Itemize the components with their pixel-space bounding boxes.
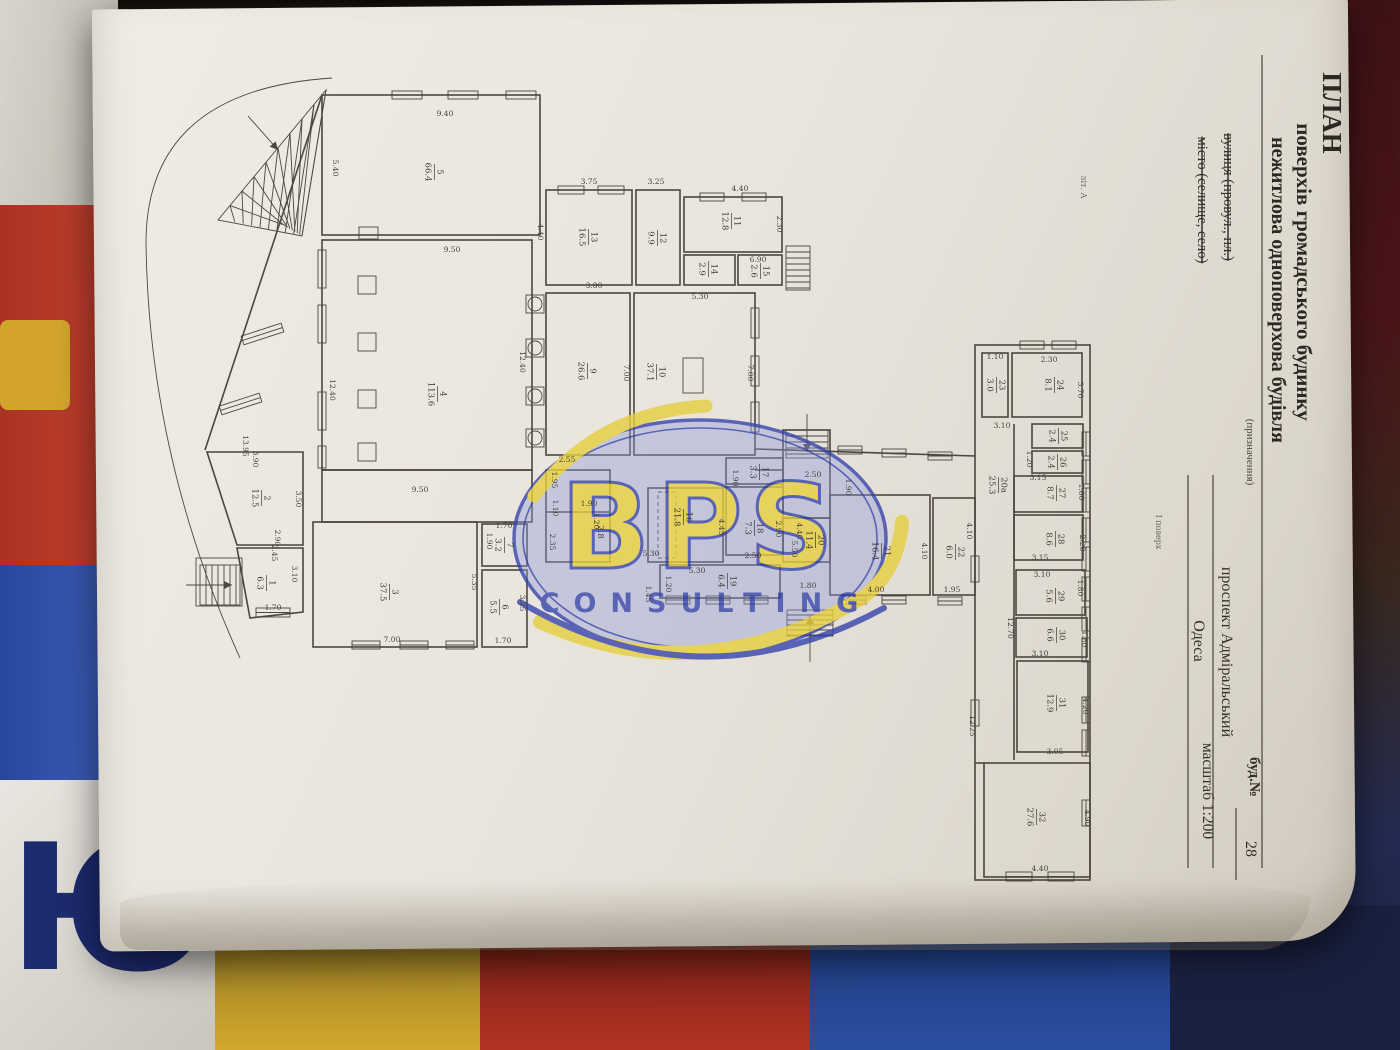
title-block-text: буд.№ — [1246, 757, 1262, 797]
room-number: 32 — [1037, 812, 1047, 823]
room-number: 7 — [505, 542, 515, 547]
dimension-label: 6.90 — [750, 255, 767, 264]
room-area: 12.9 — [1045, 694, 1055, 713]
dimension-label: 3.15 — [1032, 553, 1049, 562]
dimension-label: 12.25 — [968, 715, 977, 737]
watermark-subtitle-text: CONSULTING — [540, 588, 873, 619]
room-label: 233.0 — [985, 377, 1007, 393]
room-number: 4 — [438, 391, 448, 396]
dimension-label: 1.90 — [731, 470, 740, 487]
room-area: 2.6 — [749, 264, 759, 278]
room-label: 295.6 — [1044, 588, 1066, 604]
dimension-label: 7.00 — [384, 635, 401, 644]
room-label: 4113.6 — [426, 382, 448, 406]
room-number: 11 — [732, 216, 742, 227]
room-area: 16.4 — [870, 542, 880, 561]
room-area: 25.3 — [987, 476, 997, 495]
window-symbol — [448, 91, 478, 99]
room-area: 16.5 — [577, 228, 587, 247]
room-number: 30 — [1057, 630, 1067, 641]
dimension-label: 1.20 — [592, 513, 601, 530]
round-column — [526, 387, 544, 405]
room-area: 9.9 — [646, 231, 656, 245]
dimension-label: 2.90 — [774, 521, 783, 538]
floor-plan-drawing: BPS CONSULTING 566.44113.61316.5129.9111… — [0, 0, 1400, 1050]
dimension-label: 2.35 — [548, 534, 557, 551]
room-number: 24 — [1055, 380, 1065, 391]
dimension-label: 1.90 — [844, 479, 853, 496]
dimension-label: 1.70 — [496, 521, 513, 530]
room-label: 142.9 — [697, 261, 719, 277]
room-number: 31 — [1057, 698, 1067, 709]
room-area: 27.6 — [1025, 808, 1035, 827]
dimension-label: 2.50 — [745, 551, 762, 560]
dimension-label: 4.45 — [717, 519, 726, 536]
window-symbol — [318, 250, 326, 288]
room-wall — [322, 240, 532, 470]
dimension-label: 1.10 — [551, 500, 560, 517]
room-label: 306.6 — [1045, 627, 1067, 643]
room-number: 15 — [761, 266, 771, 277]
dimension-label: 5.30 — [692, 292, 709, 301]
room-area: 113.6 — [426, 382, 436, 406]
dimension-label: 1.90 — [581, 499, 598, 508]
room-label: 3112.9 — [1045, 694, 1067, 713]
plan-annotation: І поверх — [1154, 515, 1163, 550]
room-area: 37.5 — [378, 583, 388, 602]
dimension-label: 1.10 — [987, 352, 1004, 361]
dimension-label: 2.55 — [559, 455, 576, 464]
dimension-label: 3.10 — [290, 566, 299, 583]
dimension-label: 2.20 — [1078, 535, 1087, 552]
dimension-label: 4.00 — [868, 585, 885, 594]
room-label: 248.1 — [1043, 377, 1065, 393]
room-number: 20а — [999, 477, 1009, 493]
wall-line — [205, 95, 322, 450]
dimension-label: 3.10 — [994, 421, 1011, 430]
dimension-label: 4.90 — [1083, 810, 1092, 827]
room-number: 1 — [267, 580, 277, 585]
window-symbol — [742, 193, 766, 201]
window-symbol — [318, 392, 326, 430]
plan-fixture — [683, 358, 703, 393]
room-area: 5.6 — [1044, 589, 1054, 603]
window-symbol — [971, 556, 979, 582]
dimension-label: 3.10 — [1032, 649, 1049, 658]
window-symbol — [318, 305, 326, 343]
window-symbol — [598, 186, 624, 194]
room-area: 2.4 — [1047, 429, 1057, 443]
dimension-label: 1.20 — [1025, 451, 1034, 468]
dimension-label: 5.30 — [689, 566, 706, 575]
room-wall — [1032, 424, 1083, 448]
room-number: 5 — [435, 169, 445, 174]
room-label: 252.4 — [1047, 428, 1069, 444]
dimension-label: 3.70 — [1076, 382, 1085, 399]
column-pilaster — [358, 333, 376, 351]
dimension-label: 4.40 — [536, 224, 545, 241]
room-label: 262.4 — [1046, 454, 1068, 470]
room-label: 566.4 — [423, 163, 445, 182]
window-symbol — [506, 91, 536, 99]
room-number: 13 — [589, 232, 599, 243]
room-label: 152.6 — [749, 263, 771, 279]
dimension-label: 2.45 — [270, 545, 279, 562]
title-block: ПЛАНповерхів громадського будинкунежитло… — [1188, 55, 1347, 880]
dimension-label: 9.50 — [412, 485, 429, 494]
dimension-label: 5.40 — [331, 160, 340, 177]
dimension-label: 4.40 — [732, 184, 749, 193]
dimension-label: 5.50 — [790, 541, 799, 558]
room-label: 288.6 — [1044, 531, 1066, 547]
room-area: 37.1 — [645, 363, 655, 382]
room-label: 212.5 — [250, 489, 272, 508]
dimension-label: 3.75 — [581, 177, 598, 186]
round-column — [526, 429, 544, 447]
dimension-label: 1.80 — [1076, 580, 1085, 597]
room-area: 2.9 — [697, 262, 707, 276]
room-label: 1316.5 — [577, 228, 599, 247]
dimension-label: 1.70 — [495, 636, 512, 645]
room-area: 66.4 — [423, 163, 433, 182]
room-number: 2 — [262, 495, 272, 500]
room-label: 226.0 — [944, 544, 966, 560]
dimension-label: 3.25 — [648, 177, 665, 186]
room-number: 23 — [997, 380, 1007, 391]
room-number: 3 — [390, 589, 400, 594]
dimension-label: 2.30 — [775, 216, 784, 233]
window-symbol — [938, 597, 962, 605]
room-area: 8.7 — [1045, 486, 1055, 500]
room-area: 6.3 — [255, 576, 265, 590]
room-label: 3227.6 — [1025, 808, 1047, 827]
dimension-label: 1.80 — [1080, 631, 1089, 648]
plan-annotation: літ. А — [1079, 175, 1088, 198]
room-number: 21 — [882, 546, 892, 557]
title-block-text: (призначення) — [1244, 419, 1256, 486]
dimension-label: 7.00 — [746, 365, 755, 382]
room-number: 20 — [816, 535, 826, 546]
room-label: 1112.8 — [720, 212, 742, 231]
title-block-text: нежитлова одноповерхова будівля — [1267, 137, 1289, 443]
title-block-text: вулиця (провул., пл.) — [1220, 133, 1236, 261]
room-number: 26 — [1058, 457, 1068, 468]
room-area: 21.8 — [672, 508, 682, 527]
room-number: 6 — [500, 604, 510, 609]
room-number: 14 — [709, 264, 719, 275]
stairs-symbol — [786, 246, 810, 290]
room-area: 6.6 — [1045, 628, 1055, 642]
dimension-label: 1.45 — [644, 586, 653, 603]
room-wall — [313, 522, 477, 647]
bps-watermark: BPS CONSULTING — [514, 406, 902, 657]
column-pilaster — [358, 390, 376, 408]
window-symbol — [219, 393, 262, 415]
window-symbol — [1082, 607, 1090, 631]
window-symbol — [392, 91, 422, 99]
dimension-label: 12.40 — [328, 379, 337, 401]
room-area: 12.5 — [250, 489, 260, 508]
room-label: 337.5 — [378, 583, 400, 602]
room-label: 65.5 — [488, 599, 510, 615]
window-symbol — [1052, 341, 1076, 349]
dimension-label: 3.25 — [518, 595, 527, 612]
entrance-arrow — [248, 116, 278, 150]
title-block-text: 28 — [1242, 841, 1259, 857]
room-number: 19 — [728, 576, 738, 587]
dimension-label: 1.70 — [265, 603, 282, 612]
dimension-label: 5.30 — [643, 549, 660, 558]
column-pilaster — [358, 276, 376, 294]
dimension-label: 12.70 — [1006, 617, 1015, 639]
dimension-label: 4.40 — [1032, 864, 1049, 873]
room-area: 6.4 — [716, 574, 726, 588]
dimension-label: 3.80 — [586, 281, 603, 290]
room-number: 17 — [760, 467, 770, 478]
dimension-label: 4.10 — [920, 543, 929, 560]
photo-stage: Ю BPS CONSULTING 566.44113.61316.5129.91… — [0, 0, 1400, 1050]
annotation-labels: літ. АІ поверх — [1079, 175, 1163, 549]
dimension-label: 3.50 — [294, 491, 303, 508]
dimension-label: 7.00 — [622, 365, 631, 382]
room-number: 28 — [1056, 534, 1066, 545]
dimension-label: 3.10 — [1034, 570, 1051, 579]
room-area: 7.3 — [743, 521, 753, 535]
dimension-label: 4.40 — [795, 523, 804, 540]
room-label: 278.7 — [1045, 485, 1067, 501]
dimension-label: 1.80 — [800, 581, 817, 590]
room-area: 2.4 — [1046, 455, 1056, 469]
room-number: 29 — [1056, 591, 1066, 602]
dimension-label: 2.50 — [805, 470, 822, 479]
room-number: 10 — [657, 367, 667, 378]
room-area: 12.8 — [720, 212, 730, 231]
dimension-label: 9.40 — [437, 109, 454, 118]
dimension-label: 13.95 — [241, 435, 250, 457]
room-number: 12 — [658, 233, 668, 244]
window-symbol — [700, 193, 724, 201]
window-symbol — [318, 446, 326, 468]
window-symbol — [882, 449, 906, 457]
room-label: 1037.1 — [645, 363, 667, 382]
plan-fixture — [359, 227, 378, 239]
room-number: 25 — [1059, 431, 1069, 442]
title-block-text: місто (селище, село) — [1194, 137, 1210, 264]
room-number: 27 — [1057, 488, 1067, 499]
room-area: 5.5 — [488, 600, 498, 614]
room-area: 3.0 — [985, 378, 995, 392]
room-area: 8.6 — [1044, 532, 1054, 546]
window-symbol — [241, 323, 284, 345]
dimension-label: 5.35 — [470, 574, 479, 591]
window-symbol — [558, 186, 584, 194]
room-number: 16 — [684, 512, 694, 523]
dimension-label: 9.50 — [444, 245, 461, 254]
window-symbol — [928, 452, 952, 460]
room-number: 22 — [956, 547, 966, 558]
dimension-label: 1.95 — [550, 472, 559, 489]
dimension-label: 4.20 — [1081, 698, 1090, 715]
room-label: 926.6 — [576, 362, 598, 381]
room-label: 20а25.3 — [987, 476, 1009, 495]
dimension-label: 12.40 — [518, 351, 527, 373]
window-symbol — [751, 308, 759, 338]
room-wall — [322, 470, 532, 522]
room-number: 18 — [755, 523, 765, 534]
room-number: 9 — [588, 368, 598, 373]
window-symbol — [882, 596, 906, 604]
room-area: 8.1 — [1043, 378, 1053, 392]
title-block-text: Одеса — [1190, 620, 1207, 661]
dimension-label: 3.15 — [1030, 473, 1047, 482]
dimension-label: 4.10 — [965, 523, 974, 540]
room-label: 129.9 — [646, 230, 668, 246]
round-column — [526, 295, 544, 313]
title-block-text: проспект Адміральський — [1218, 567, 1235, 738]
dimension-label: 1.95 — [944, 585, 961, 594]
room-label: 73.2 — [493, 537, 515, 553]
title-block-text: поверхів громадського будинку — [1292, 123, 1316, 421]
dimension-label: 1.20 — [664, 576, 673, 593]
room-area: 3.3 — [748, 465, 758, 479]
room-area: 6.0 — [944, 545, 954, 559]
dimension-label: 3.90 — [251, 451, 260, 468]
title-block-text: масштаб 1:200 — [1199, 743, 1216, 840]
round-column — [526, 339, 544, 357]
column-pilaster — [358, 443, 376, 461]
dimension-label: 1.90 — [485, 533, 494, 550]
dimension-label: 1.80 — [1077, 484, 1086, 501]
room-label: 16.3 — [255, 575, 277, 591]
dimension-label: 2.30 — [1041, 355, 1058, 364]
entrance-ramp-hatch — [218, 90, 326, 236]
window-symbol — [1020, 341, 1044, 349]
dimension-label: 3.05 — [1047, 747, 1064, 756]
room-area: 26.6 — [576, 362, 586, 381]
room-area: 11.4 — [804, 531, 814, 550]
title-block-text: ПЛАН — [1317, 72, 1347, 154]
